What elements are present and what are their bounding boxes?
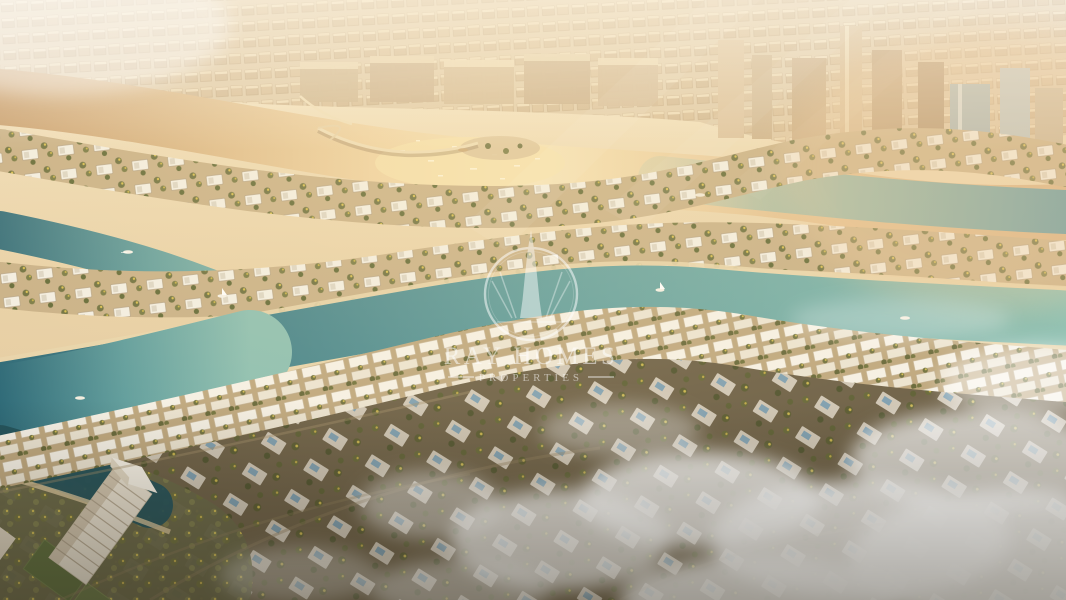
aerial-render-image: RAY HOMES PROPERTIES bbox=[0, 0, 1066, 600]
watermark-subtitle: PROPERTIES bbox=[479, 372, 583, 384]
bottom-vignette bbox=[0, 400, 1066, 600]
watermark-brand: RAY HOMES bbox=[444, 343, 619, 370]
scene-svg: RAY HOMES PROPERTIES bbox=[0, 0, 1066, 600]
